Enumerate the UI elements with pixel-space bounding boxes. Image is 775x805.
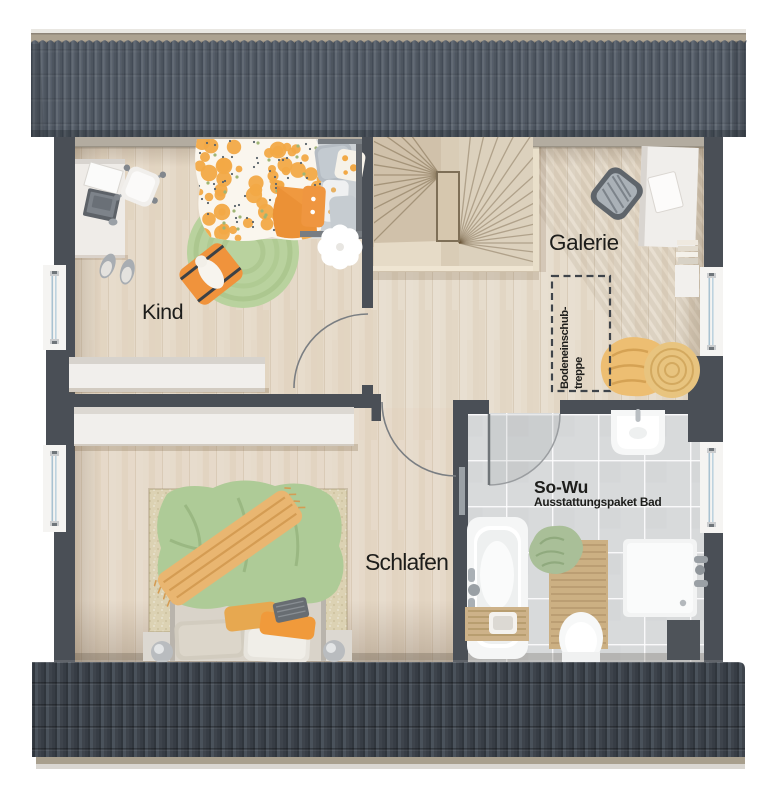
svg-text:Galerie: Galerie: [549, 230, 619, 255]
svg-text:Ausstattungspaket Bad: Ausstattungspaket Bad: [534, 495, 662, 509]
svg-text:So-Wu: So-Wu: [534, 477, 588, 497]
svg-text:treppe: treppe: [573, 357, 585, 389]
svg-text:Kind: Kind: [142, 300, 183, 324]
svg-text:Bodeneinschub-: Bodeneinschub-: [559, 306, 571, 389]
svg-text:Schlafen: Schlafen: [365, 549, 448, 575]
